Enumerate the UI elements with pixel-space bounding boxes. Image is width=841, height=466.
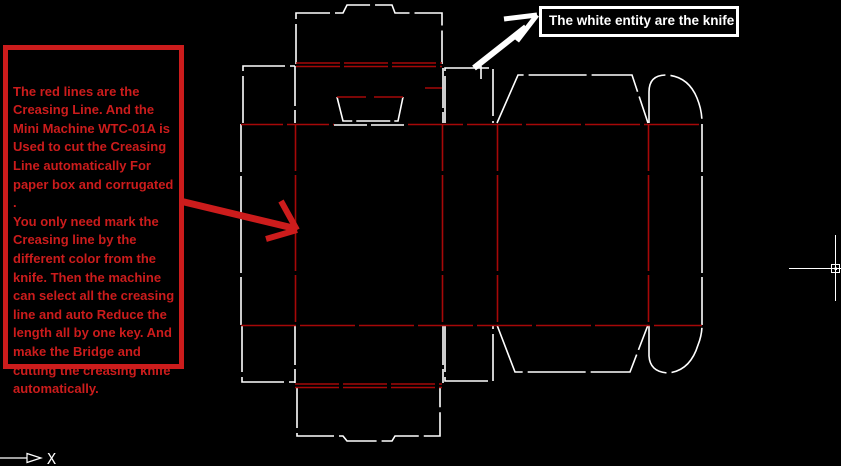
creasing-note-text: The red lines are the Creasing Line. And…	[13, 84, 174, 397]
crease-lines	[241, 63, 702, 388]
rounded-flap-bottom	[649, 325, 702, 373]
crosshair-cursor	[789, 235, 841, 301]
knife-note-box: The white entity are the knife	[539, 6, 739, 37]
dust-flap-top-right	[445, 68, 493, 123]
trapezoid-flap-bottom	[497, 325, 648, 372]
knife-note-text: The white entity are the knife	[549, 13, 734, 28]
dust-flap-bottom-left	[242, 325, 295, 382]
thumb-notch-sides	[337, 97, 403, 121]
ucs-x-arrowhead	[27, 454, 41, 463]
knife-lines	[241, 5, 702, 441]
pickbox-center-dot	[835, 268, 838, 271]
red-arrow-shaft	[180, 201, 293, 228]
ucs-x-label: X	[47, 450, 56, 466]
top-tuck-flap	[296, 5, 442, 64]
dust-flap-bottom-right	[445, 325, 493, 381]
creasing-note-box: The red lines are the Creasing Line. And…	[3, 45, 184, 369]
red-arrow-barb-lower	[266, 230, 297, 239]
bottom-tuck-flap	[297, 388, 440, 441]
red-annotation-arrow	[180, 201, 297, 239]
cad-viewport[interactable]: X The red lines are the Creasing Line. A…	[0, 0, 841, 466]
dust-flap-top-left	[243, 66, 295, 123]
rounded-flap-top	[649, 75, 702, 123]
white-arrow-shaft	[474, 27, 526, 68]
trapezoid-flap-top	[497, 75, 648, 123]
white-annotation-arrow	[474, 15, 537, 68]
ucs-icon: X	[0, 450, 56, 466]
